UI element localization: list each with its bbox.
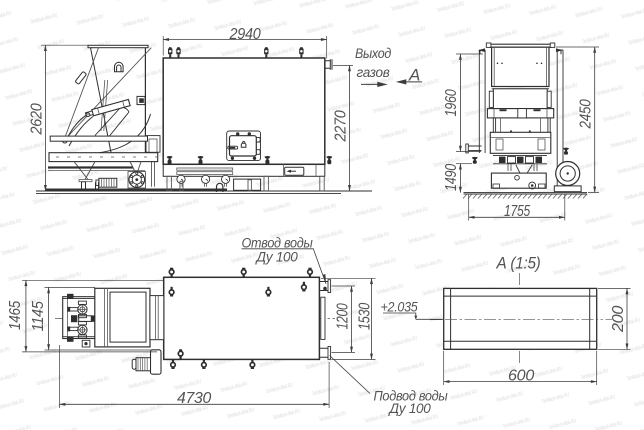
svg-text:+2.035: +2.035	[381, 298, 418, 314]
svg-text:2270: 2270	[333, 110, 350, 142]
svg-text:2620: 2620	[29, 103, 46, 135]
svg-text:200: 200	[610, 306, 627, 333]
svg-text:Ду 100: Ду 100	[388, 400, 431, 416]
svg-text:4730: 4730	[177, 390, 211, 407]
svg-text:600: 600	[508, 367, 534, 384]
svg-text:2940: 2940	[229, 26, 261, 43]
svg-text:Выход: Выход	[355, 46, 392, 61]
svg-text:1755: 1755	[504, 203, 530, 220]
svg-text:2450: 2450	[578, 99, 595, 129]
svg-text:1530: 1530	[357, 303, 374, 330]
svg-text:1145: 1145	[30, 301, 47, 331]
svg-text:1490: 1490	[443, 164, 460, 191]
svg-text:1465: 1465	[7, 301, 24, 330]
svg-text:1200: 1200	[335, 303, 352, 329]
svg-text:1960: 1960	[443, 89, 460, 116]
svg-text:газов: газов	[357, 65, 390, 80]
svg-text:А (1:5): А (1:5)	[496, 253, 541, 272]
svg-text:Ду 100: Ду 100	[255, 249, 298, 265]
